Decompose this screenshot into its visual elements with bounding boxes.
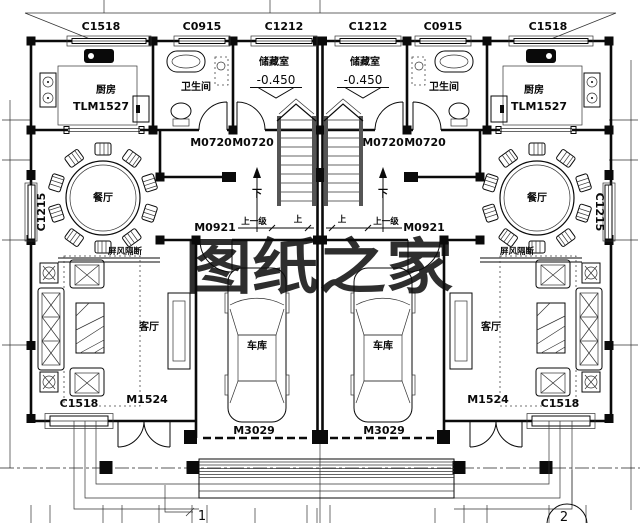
- room-label-dining-right: 餐厅: [526, 191, 547, 204]
- kitchen-left: 厨房 TLM1527: [40, 49, 149, 125]
- door-label-m3029-right: M3029: [363, 424, 405, 437]
- room-label-garage-left: 车库: [247, 339, 267, 352]
- bathroom-right: 卫生间: [412, 51, 473, 126]
- floor-plan-page: C1518 C0915 C1212 C1212 C0915 C1518 C121…: [0, 0, 640, 523]
- axis-bubble-2: 2: [560, 510, 568, 523]
- window-label-c1518-top-left: C1518: [82, 20, 121, 33]
- kitchen-right: 厨房 TLM1527: [491, 49, 600, 125]
- room-label-dining-left: 餐厅: [92, 191, 113, 204]
- door-label-m0720-right-1: M0720: [362, 136, 404, 149]
- watermark-text: 图纸之家: [185, 233, 453, 303]
- door-label-m0720-right-2: M0720: [404, 136, 446, 149]
- axis-bubble-1: 1: [198, 509, 206, 523]
- door-label-m1524-right: M1524: [467, 393, 509, 406]
- partition-label-right: 屏风隔断: [499, 246, 535, 257]
- stair-label-up-one-left: 上一级: [241, 216, 267, 227]
- entrance-steps: [199, 459, 454, 498]
- door-label-m0720-left-2: M0720: [232, 136, 274, 149]
- level-marker-left: -0.450: [257, 73, 296, 87]
- axis-markers: 1 2: [165, 470, 587, 523]
- room-label-storage-right: 储藏室: [349, 55, 380, 68]
- room-label-bathroom-left: 卫生间: [181, 80, 211, 93]
- floor-plan-drawing: C1518 C0915 C1212 C1212 C0915 C1518 C121…: [0, 0, 640, 523]
- storage-left: 储藏室 -0.450: [250, 55, 302, 98]
- window-label-c1518-top-right: C1518: [529, 20, 568, 33]
- door-label-tlm1527-left: TLM1527: [73, 100, 129, 113]
- bathroom-left: 卫生间: [167, 51, 228, 126]
- window-label-c0915-top-left: C0915: [183, 20, 222, 33]
- window-label-c1212-top-left: C1212: [265, 20, 304, 33]
- stair-label-down-left: 下: [252, 188, 262, 200]
- window-label-c1212-top-right: C1212: [349, 20, 388, 33]
- partition-label-left: 屏风隔断: [107, 246, 143, 257]
- window-label-c1215-right: C1215: [593, 193, 606, 232]
- stair-label-down-right: 下: [378, 188, 388, 200]
- door-label-m0720-left-1: M0720: [190, 136, 232, 149]
- living-left: 客厅: [38, 256, 190, 406]
- window-label-c1215-left: C1215: [35, 193, 48, 232]
- level-marker-right: -0.450: [344, 73, 383, 87]
- window-label-c1518-bottom-left: C1518: [60, 397, 99, 410]
- door-label-tlm1527-right: TLM1527: [511, 100, 567, 113]
- storage-right: 储藏室 -0.450: [337, 55, 389, 98]
- door-label-m1524-left: M1524: [126, 393, 168, 406]
- stair-label-up-right: 上: [338, 214, 347, 225]
- dining-left: 餐厅: [48, 143, 158, 253]
- living-right: 客厅: [450, 256, 602, 406]
- room-label-bathroom-right: 卫生间: [429, 80, 459, 93]
- room-label-storage-left: 储藏室: [258, 55, 289, 68]
- door-label-m3029-left: M3029: [233, 424, 275, 437]
- window-label-c1518-bottom-right: C1518: [541, 397, 580, 410]
- room-label-living-left: 客厅: [138, 320, 159, 333]
- stair-label-up-one-right: 上一级: [373, 216, 399, 227]
- window-label-c0915-top-right: C0915: [424, 20, 463, 33]
- dining-right: 餐厅: [482, 143, 592, 253]
- room-label-kitchen-left: 厨房: [96, 83, 116, 96]
- room-label-living-right: 客厅: [480, 320, 501, 333]
- room-label-kitchen-right: 厨房: [524, 83, 544, 96]
- stair-label-up-left: 上: [294, 214, 303, 225]
- room-label-garage-right: 车库: [373, 339, 393, 352]
